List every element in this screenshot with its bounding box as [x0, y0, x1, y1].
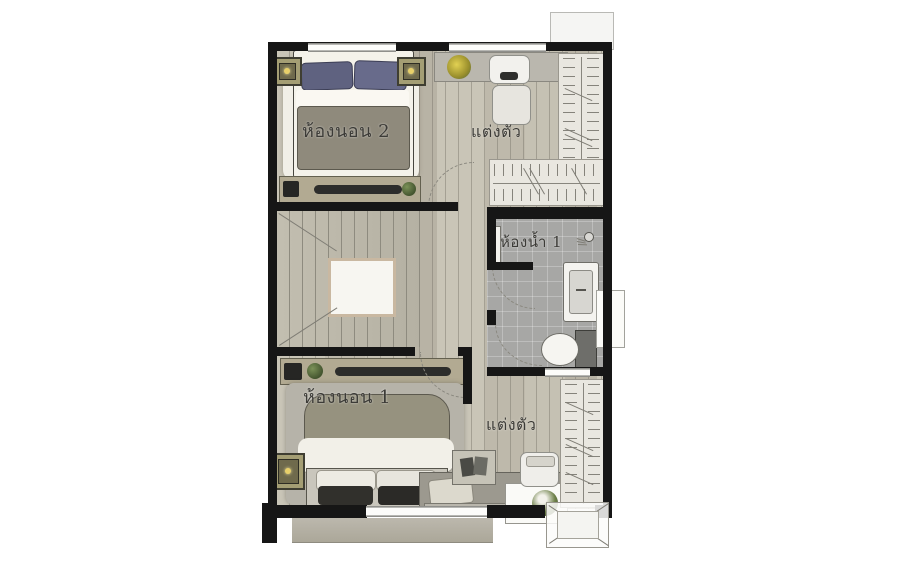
lamp-icon: [285, 468, 291, 474]
window-bedroom2: [308, 43, 396, 52]
bedroom2-nightstand-right: [397, 57, 426, 86]
window-bedroom1: [366, 506, 487, 517]
wall-bathroom-west-upper: [487, 207, 496, 262]
bedroom2-pillow-left: [301, 61, 354, 91]
corner-chair: [520, 452, 559, 487]
vanity-ottoman: [492, 85, 531, 125]
wall-hall-bedroom1: [268, 347, 415, 356]
floor-plan-canvas: ห้องนอน 2 แต่งตัว ห้องน้ำ 1: [0, 0, 900, 588]
wall-bathroom-stub: [487, 262, 533, 270]
wall-corner-block: [262, 503, 277, 543]
wardrobe-bottom-right: [560, 379, 605, 508]
plant-icon: [402, 182, 416, 196]
sink: [563, 262, 599, 322]
toilet-bowl: [541, 333, 579, 366]
vanity-chair: [489, 55, 530, 84]
dressing-top-label: แต่งตัว: [471, 120, 521, 145]
closet-rod: [583, 383, 584, 504]
bathroom-label: ห้องน้ำ 1: [500, 230, 562, 254]
window-bathroom-south: [545, 368, 590, 377]
chair-seat: [500, 72, 518, 80]
hanger-ticks: [494, 164, 599, 176]
wall-bottom-right: [487, 505, 545, 518]
wall-bedroom1-east: [463, 347, 472, 404]
window-dressing-top: [449, 43, 546, 52]
speaker-icon: [283, 181, 299, 197]
closet-rod: [493, 183, 600, 184]
balcony-table: [546, 502, 609, 548]
dressing-bottom-label: แต่งตัว: [486, 413, 536, 438]
stair-void: [328, 258, 396, 317]
wall-bedroom2-south: [268, 202, 458, 211]
balcony-slab: [292, 518, 493, 543]
bedroom1-pillow-dark-left: [318, 486, 373, 505]
plant-icon: [307, 363, 323, 379]
wall-bathroom-west-mid: [487, 310, 496, 325]
bedroom2-tv-console: [279, 176, 421, 203]
lamp-icon: [284, 68, 290, 74]
wall-right: [603, 42, 612, 518]
bedroom2-label: ห้องนอน 2: [302, 116, 390, 145]
tv-icon: [314, 185, 402, 194]
book-table: [452, 450, 496, 485]
wall-left: [268, 42, 277, 505]
bedroom2-nightstand-left: [273, 57, 302, 86]
wardrobe-top-bottom: [489, 159, 604, 206]
lamp-icon: [408, 68, 414, 74]
shower-icon: [576, 230, 594, 248]
wall-bathroom-north: [487, 207, 612, 219]
bedroom1-label: ห้องนอน 1: [303, 382, 391, 411]
flower-vase-icon: [447, 55, 471, 79]
speaker-icon: [284, 363, 302, 380]
bedroom1-sheet-fold: [298, 438, 454, 472]
